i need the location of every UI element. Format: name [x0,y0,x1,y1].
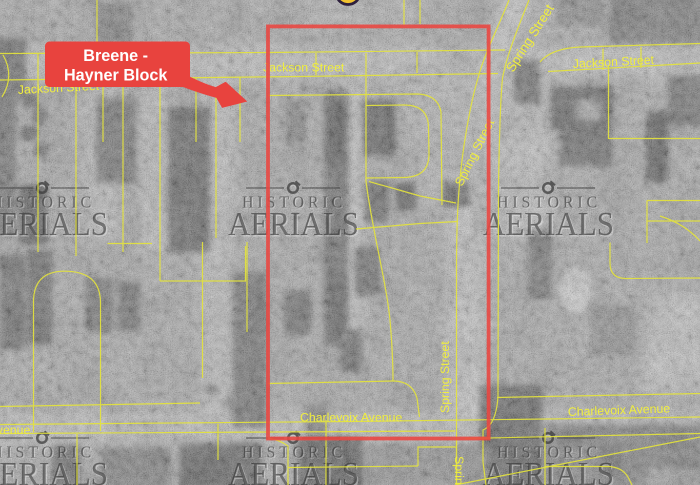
svg-text:Hayner Block: Hayner Block [64,67,168,85]
svg-text:Charlevoix Avenue: Charlevoix Avenue [300,411,402,425]
svg-text:Spring Street: Spring Street [438,341,452,413]
svg-text:Charlevoix Avenue: Charlevoix Avenue [0,423,30,437]
svg-text:Spring Street: Spring Street [452,456,466,485]
svg-text:Jackson Street: Jackson Street [263,61,345,75]
svg-text:Breene -: Breene - [83,47,148,65]
